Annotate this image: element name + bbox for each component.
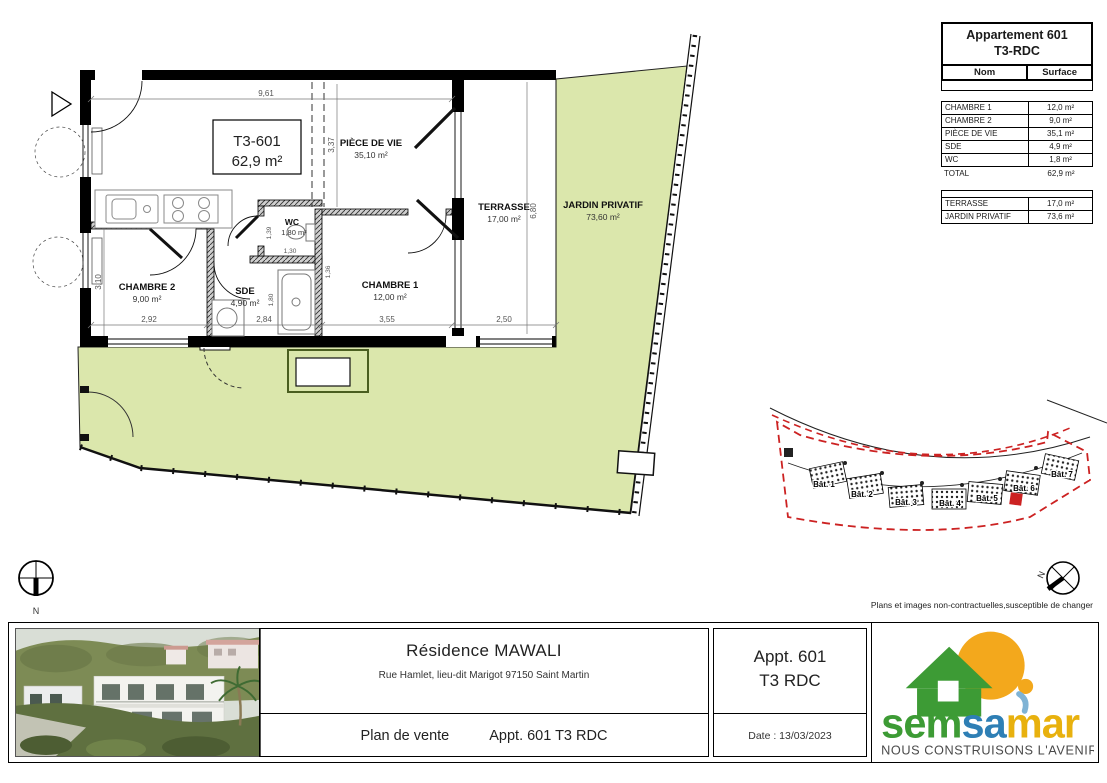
svg-text:2,92: 2,92 [141, 315, 157, 324]
exterior-table: TERRASSE17,0 m² JARDIN PRIVATIF73,6 m² [941, 190, 1093, 224]
unit-code: T3-601 [233, 133, 281, 150]
svg-text:TERRASSE: TERRASSE [478, 202, 530, 213]
svg-text:Bât. 5: Bât. 5 [976, 494, 998, 503]
svg-text:Bât. 4: Bât. 4 [939, 499, 961, 508]
disclaimer-text: Plans et images non-contractuelles,susce… [871, 600, 1093, 610]
svg-text:73,60 m²: 73,60 m² [586, 212, 620, 222]
company-logo-cell: semsamar NOUS CONSTRUISONS L'AVENIR [871, 623, 1098, 762]
apartment-number: Appt. 601 [714, 645, 866, 669]
svg-text:CHAMBRE 2: CHAMBRE 2 [119, 282, 175, 293]
svg-text:3,37: 3,37 [327, 137, 336, 153]
semsamar-logo: semsamar NOUS CONSTRUISONS L'AVENIR [876, 626, 1094, 760]
site-plan: Bât. 1 Bât. 2 Bât. 3 Bât. 4 Bât. 5 Bât. … [760, 395, 1107, 620]
col-header-nom: Nom [943, 66, 1028, 79]
site-marker [784, 448, 793, 457]
svg-text:17,00 m²: 17,00 m² [487, 214, 521, 224]
svg-text:6,80: 6,80 [529, 203, 538, 219]
plan-de-vente-sheet: T3-601 62,9 m² PIÈCE DE VIE 35,10 m² WC … [0, 0, 1107, 783]
table-row: CHAMBRE 29,0 m² [941, 115, 1093, 128]
svg-text:1,39: 1,39 [266, 226, 273, 239]
apartment-title: Appartement 601 T3-RDC [941, 22, 1093, 66]
svg-text:1,80: 1,80 [268, 293, 275, 306]
unit-reference: Appt. 601 T3 RDC [489, 728, 607, 744]
table-header: Nom Surface [941, 66, 1093, 81]
svg-text:12,00 m²: 12,00 m² [373, 292, 407, 302]
unit-label-box: T3-601 62,9 m² [213, 120, 301, 174]
svg-text:9,00 m²: 9,00 m² [133, 294, 162, 304]
svg-text:SDE: SDE [235, 286, 255, 297]
highlighted-unit [1009, 492, 1023, 506]
svg-text:1,80 m²: 1,80 m² [281, 228, 307, 237]
table-row: PIÈCE DE VIE35,1 m² [941, 128, 1093, 141]
svg-text:4,90 m²: 4,90 m² [231, 298, 260, 308]
residence-photo [15, 628, 261, 757]
floor-plan-drawing: T3-601 62,9 m² PIÈCE DE VIE 35,10 m² WC … [0, 0, 760, 620]
svg-text:35,10 m²: 35,10 m² [354, 150, 388, 160]
site-boundary-arc [772, 415, 1070, 455]
table-row: CHAMBRE 112,0 m² [941, 102, 1093, 115]
plan-date: Date : 13/03/2023 [748, 730, 831, 742]
rooms-table: CHAMBRE 112,0 m² CHAMBRE 29,0 m² PIÈCE D… [941, 101, 1093, 180]
entrance-arrow-icon [52, 92, 71, 116]
table-row: TERRASSE17,0 m² [941, 198, 1093, 211]
svg-text:JARDIN PRIVATIF: JARDIN PRIVATIF [563, 200, 643, 211]
residence-address: Rue Hamlet, lieu-dit Marigot 97150 Saint… [260, 670, 708, 681]
surface-info-panel: Appartement 601 T3-RDC Nom Surface CHAMB… [941, 22, 1093, 224]
logo-wordmark: semsamar [881, 699, 1080, 746]
garden-utility-box [617, 451, 654, 475]
svg-text:WC: WC [285, 217, 299, 227]
col-header-surface: Surface [1028, 66, 1091, 79]
title-block: Résidence MAWALI Rue Hamlet, lieu-dit Ma… [8, 622, 1099, 763]
svg-text:PIÈCE DE VIE: PIÈCE DE VIE [340, 138, 402, 149]
svg-text:2,84: 2,84 [256, 315, 272, 324]
svg-text:9,61: 9,61 [258, 89, 274, 98]
svg-text:2,50: 2,50 [496, 315, 512, 324]
svg-text:Bât. 1: Bât. 1 [813, 480, 835, 489]
svg-text:Bât. 2: Bât. 2 [851, 490, 873, 499]
document-type: Plan de vente [361, 728, 450, 744]
project-cell: Résidence MAWALI Rue Hamlet, lieu-dit Ma… [259, 628, 709, 757]
residence-rendering [16, 629, 260, 756]
svg-text:3,55: 3,55 [379, 315, 395, 324]
table-row: JARDIN PRIVATIF73,6 m² [941, 211, 1093, 224]
svg-text:Bât. 7: Bât. 7 [1051, 470, 1073, 479]
svg-text:1,36: 1,36 [325, 265, 332, 278]
svg-text:3,10: 3,10 [94, 274, 103, 290]
private-garden [78, 34, 700, 516]
empty-row [941, 81, 1093, 91]
residence-name: Résidence MAWALI [260, 641, 708, 661]
svg-text:Bât. 3: Bât. 3 [895, 498, 917, 507]
apartment-type: T3 RDC [714, 669, 866, 693]
apartment-cell: Appt. 601 T3 RDC Date : 13/03/2023 [713, 628, 867, 757]
table-row: WC1,8 m² [941, 154, 1093, 167]
north-label: N [33, 606, 40, 616]
svg-text:Bât. 6: Bât. 6 [1013, 484, 1035, 493]
table-row: SDE4,9 m² [941, 141, 1093, 154]
svg-text:CHAMBRE 1: CHAMBRE 1 [362, 280, 419, 291]
svg-text:1,30: 1,30 [284, 248, 297, 255]
compass-rose-left: N [19, 561, 53, 616]
kitchen-fixtures [95, 190, 232, 228]
compass-rose-right: N [1035, 562, 1079, 594]
north-label: N [1035, 570, 1047, 580]
total-row: TOTAL62,9 m² [941, 167, 1093, 180]
logo-tagline: NOUS CONSTRUISONS L'AVENIR [881, 742, 1094, 757]
unit-area: 62,9 m² [232, 153, 283, 170]
